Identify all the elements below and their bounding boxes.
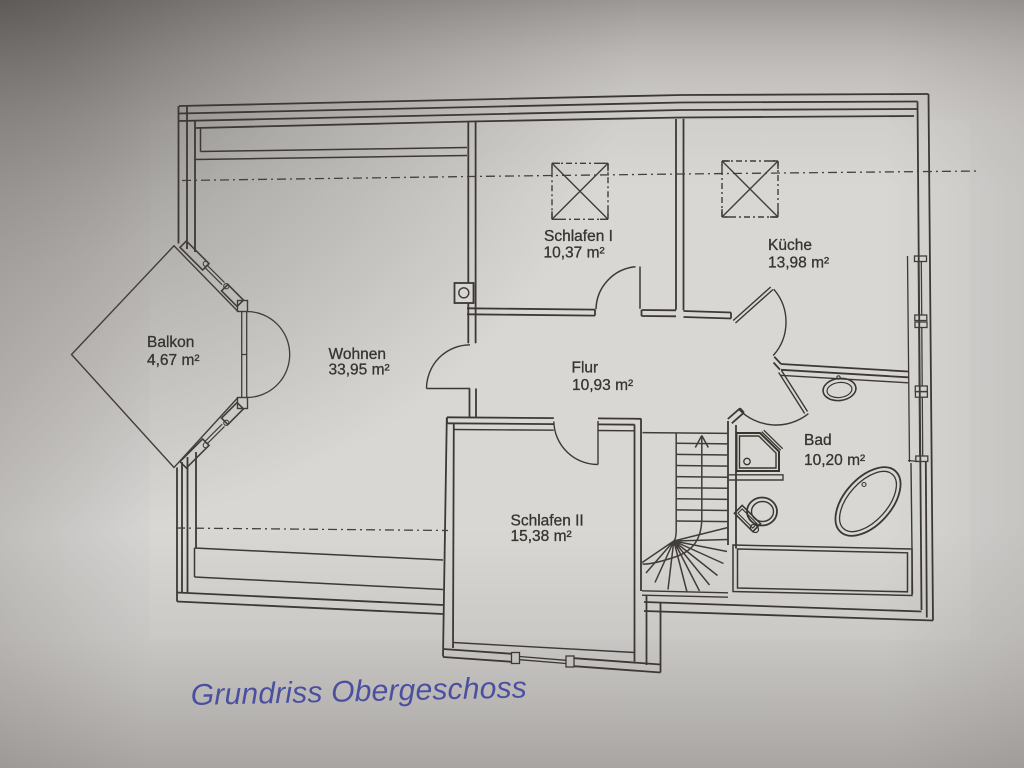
svg-text:Balkon: Balkon (147, 334, 194, 351)
svg-text:Bad: Bad (804, 432, 832, 449)
svg-text:Schlafen I: Schlafen I (544, 228, 613, 245)
svg-text:Schlafen II: Schlafen II (511, 513, 584, 530)
svg-text:Wohnen: Wohnen (329, 346, 386, 363)
svg-text:4,67 m²: 4,67 m² (147, 352, 200, 369)
svg-text:10,37 m²: 10,37 m² (544, 245, 605, 262)
svg-text:13,98 m²: 13,98 m² (768, 255, 829, 272)
svg-text:10,20 m²: 10,20 m² (804, 452, 865, 469)
svg-text:10,93 m²: 10,93 m² (572, 377, 633, 394)
svg-text:15,38 m²: 15,38 m² (511, 528, 572, 545)
svg-text:Flur: Flur (572, 360, 599, 377)
svg-text:Küche: Küche (768, 237, 812, 254)
svg-text:33,95 m²: 33,95 m² (329, 362, 390, 379)
